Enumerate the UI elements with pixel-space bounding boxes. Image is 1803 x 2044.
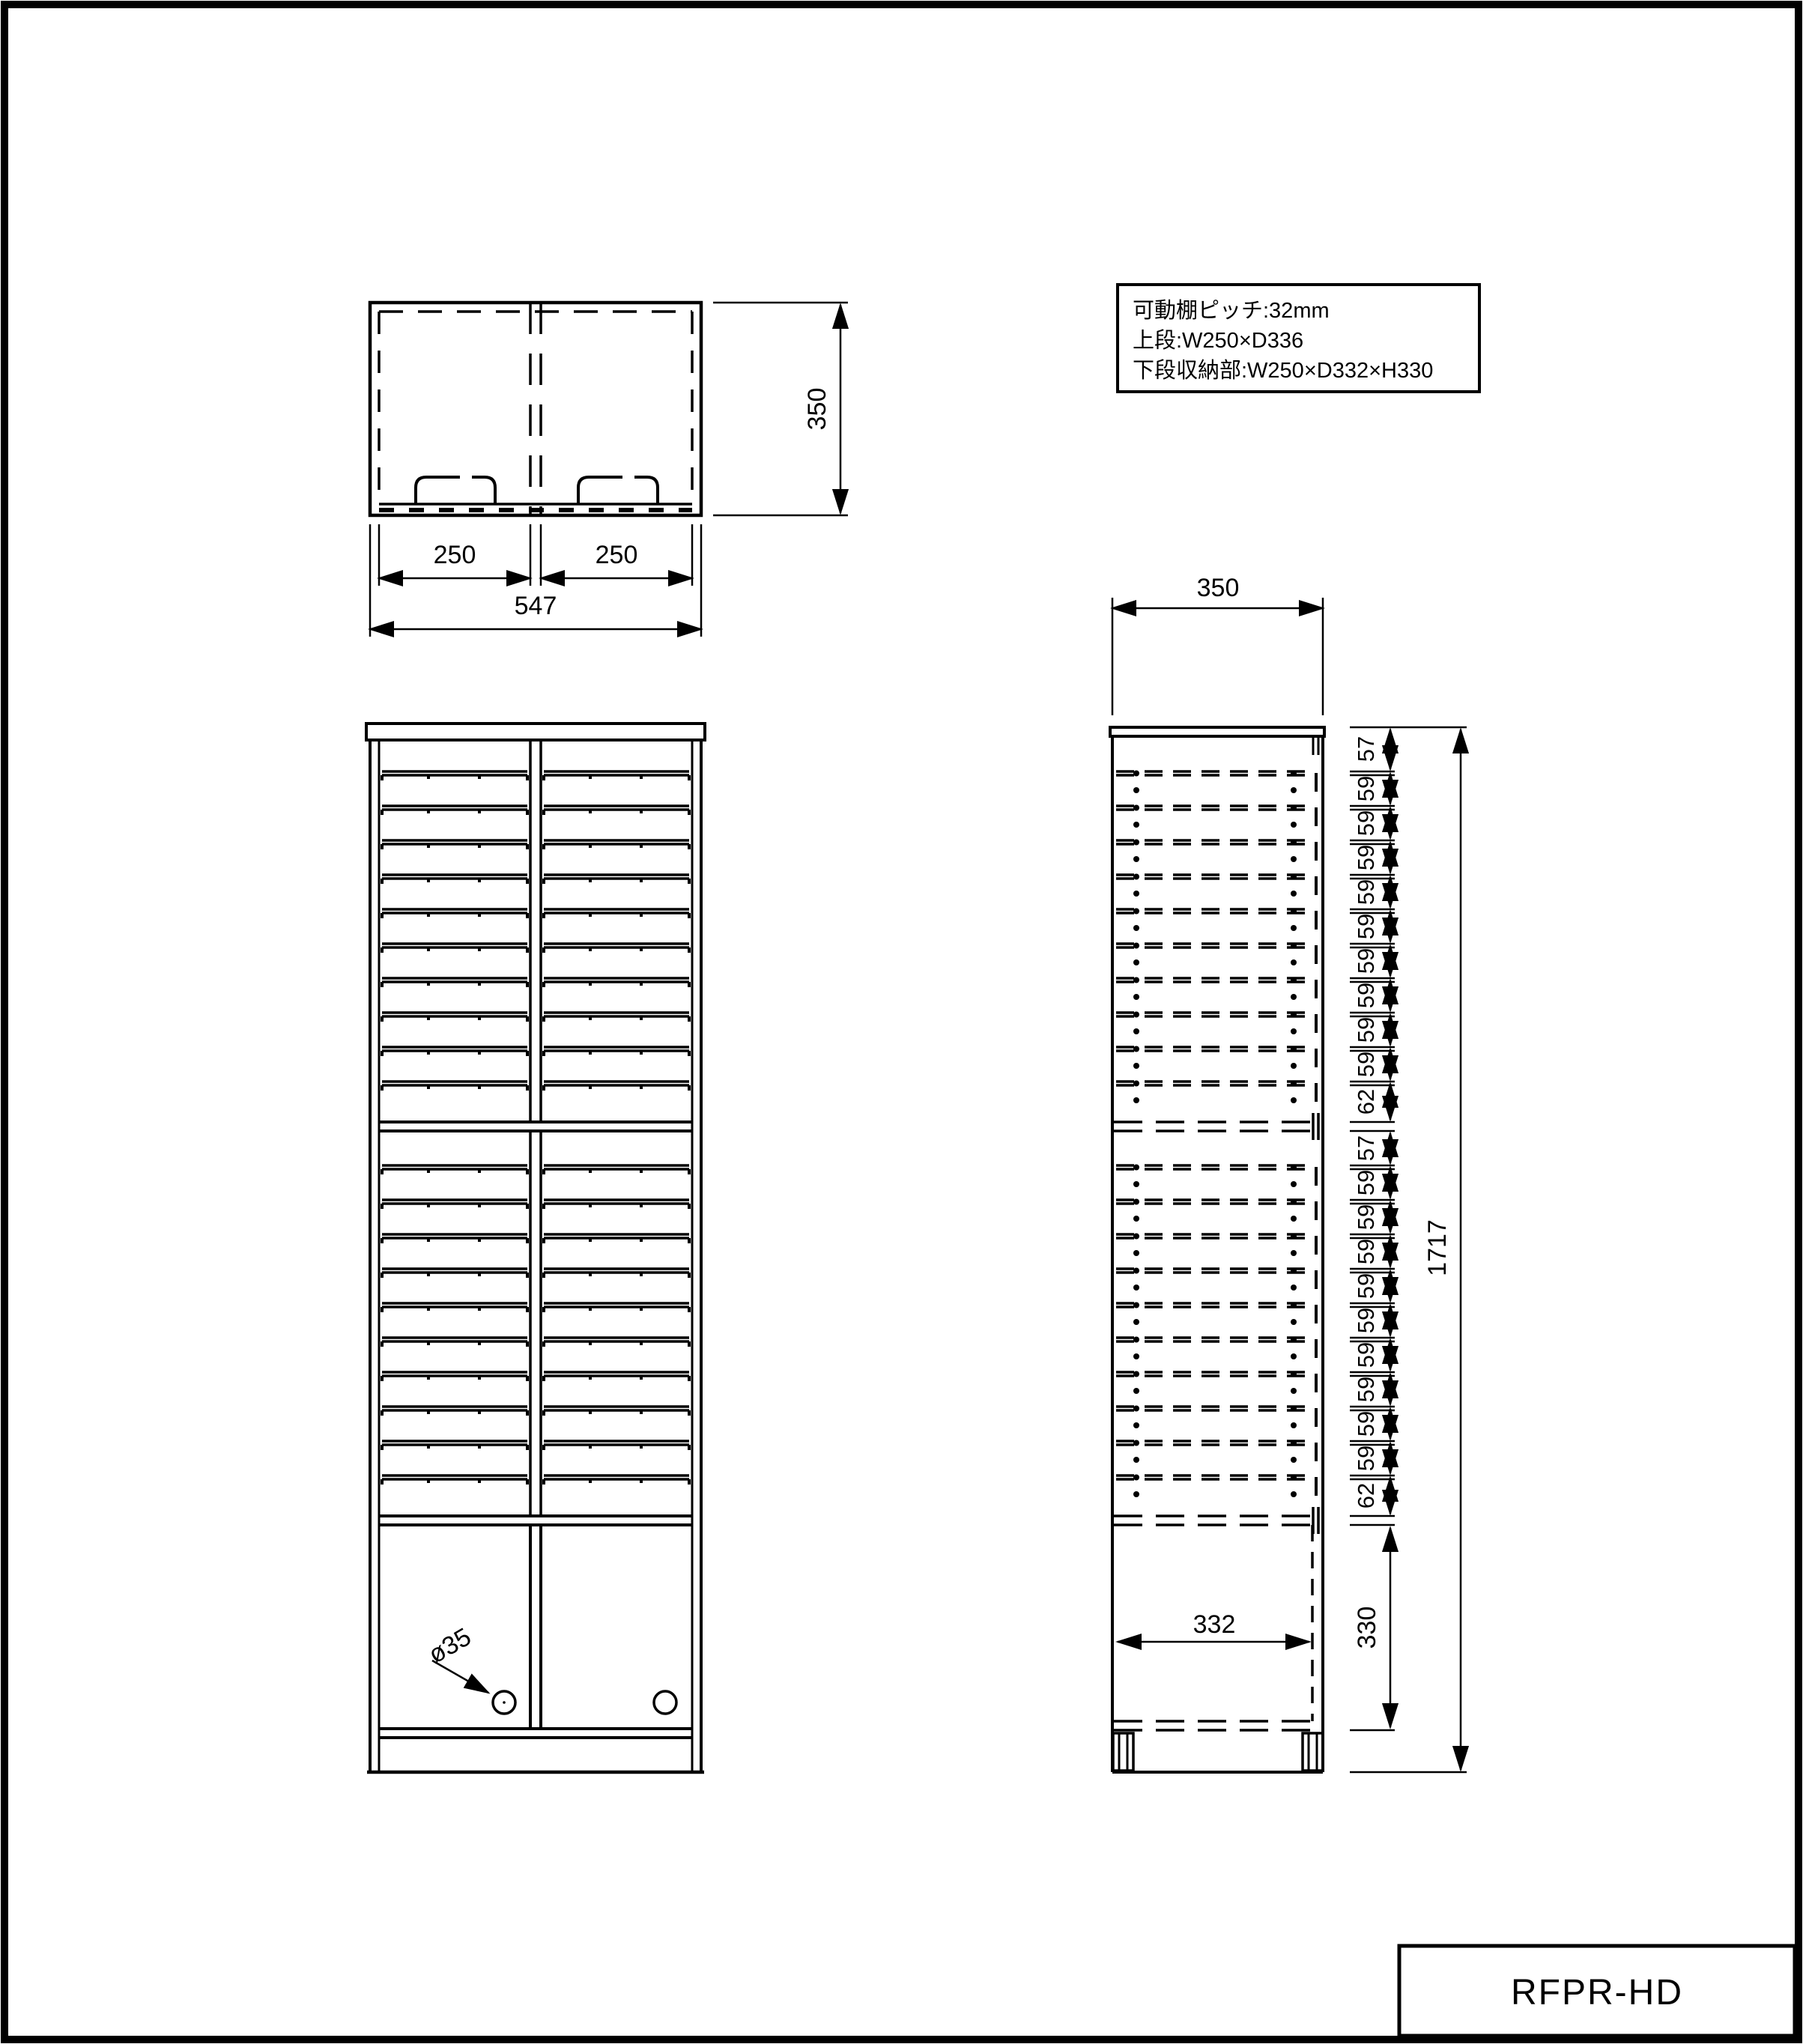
chain-dim: 59 [1353,879,1379,905]
feet [1113,1733,1323,1771]
chain-dim: 59 [1353,1170,1379,1195]
chain-dim: 59 [1353,1411,1379,1437]
chain-dim: 59 [1353,776,1379,801]
chain-dim: 59 [1353,1446,1379,1471]
dim-total-height: 1717 [1423,1219,1452,1276]
chain-dim: 59 [1353,1342,1379,1368]
model-number: RFPR-HD [1511,1973,1683,2013]
notch-right [578,477,658,505]
chain-dim: 57 [1353,1135,1379,1161]
chain-dim: 59 [1353,1308,1379,1333]
dim-top-depth: 350 [803,388,831,431]
side-view: 350 332 330 [1110,574,1467,1772]
storage-dimensions: 332 330 [1118,1528,1395,1730]
dim-total-width: 547 [515,592,557,620]
finger-hole-right [654,1691,676,1714]
chain-dim: 59 [1353,1239,1379,1264]
info-shelf-pitch: 可動棚ピッチ:32mm [1133,298,1330,323]
chain-dim: 59 [1353,948,1379,974]
front-view: ø35 [366,724,705,1772]
info-upper-section: 上段:W250×D336 [1133,328,1303,353]
top-view: 250 250 547 350 [370,303,848,637]
chain-dim: 59 [1353,845,1379,870]
dim-side-depth: 350 [1197,574,1240,602]
chain-dim: 59 [1353,1017,1379,1043]
pitch-chain: 57 59 59 59 59 59 59 59 59 59 62 57 59 5… [1350,727,1467,1514]
dim-bay-right: 250 [596,541,638,569]
info-lower-storage: 下段収納部:W250×D332×H330 [1133,358,1433,383]
chain-dim: 59 [1353,983,1379,1008]
chain-dim: 59 [1353,1273,1379,1299]
drawing-page: RFPR-HD 可動棚ピッチ:32mm 上段:W250×D336 下段収納部:W… [0,0,1803,2044]
chain-dim: 59 [1353,914,1379,939]
chain-dim: 59 [1353,810,1379,836]
chain-dim: 59 [1353,1052,1379,1077]
technical-drawing-canvas: RFPR-HD 可動棚ピッチ:32mm 上段:W250×D336 下段収納部:W… [0,0,1803,2044]
dim-storage-height: 330 [1353,1607,1381,1649]
top-view-dimensions: 250 250 547 350 [370,303,848,637]
sliding-doors: ø35 [424,1525,676,1729]
dim-inner-depth: 332 [1193,1610,1236,1639]
chain-dim: 59 [1353,1377,1379,1402]
dim-bay-left: 250 [434,541,476,569]
title-block: RFPR-HD [1399,1946,1795,2036]
side-depth-dimension: 350 [1112,574,1323,715]
dim-hole-diameter: ø35 [424,1622,476,1669]
chain-dim: 59 [1353,1204,1379,1230]
page-border [4,4,1799,2040]
info-box: 可動棚ピッチ:32mm 上段:W250×D336 下段収納部:W250×D332… [1118,285,1479,392]
chain-dim: 62 [1353,1089,1379,1115]
chain-dim: 57 [1353,736,1379,762]
notch-left [416,477,495,505]
chain-dim: 62 [1353,1483,1379,1508]
